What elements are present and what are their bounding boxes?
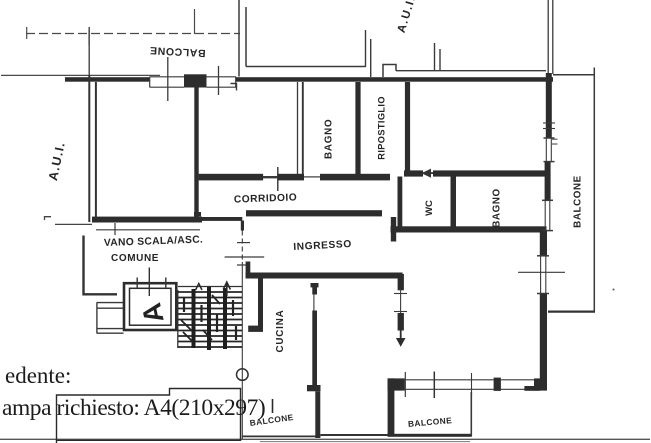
svg-text:ampa richiesto: A4(210x297): ampa richiesto: A4(210x297) <box>2 395 265 421</box>
svg-text:BAGNO: BAGNO <box>491 188 502 227</box>
svg-text:RIPOSTIGLIO: RIPOSTIGLIO <box>376 96 386 160</box>
svg-text:COMUNE: COMUNE <box>111 253 159 264</box>
svg-text:edente:: edente: <box>5 363 71 388</box>
svg-text:CUCINA: CUCINA <box>275 310 286 353</box>
svg-text:BALCONE: BALCONE <box>573 175 584 228</box>
svg-text:CORRIDOIO: CORRIDOIO <box>234 192 298 205</box>
svg-text:BAGNO: BAGNO <box>324 119 335 159</box>
svg-text:WC: WC <box>424 200 435 216</box>
